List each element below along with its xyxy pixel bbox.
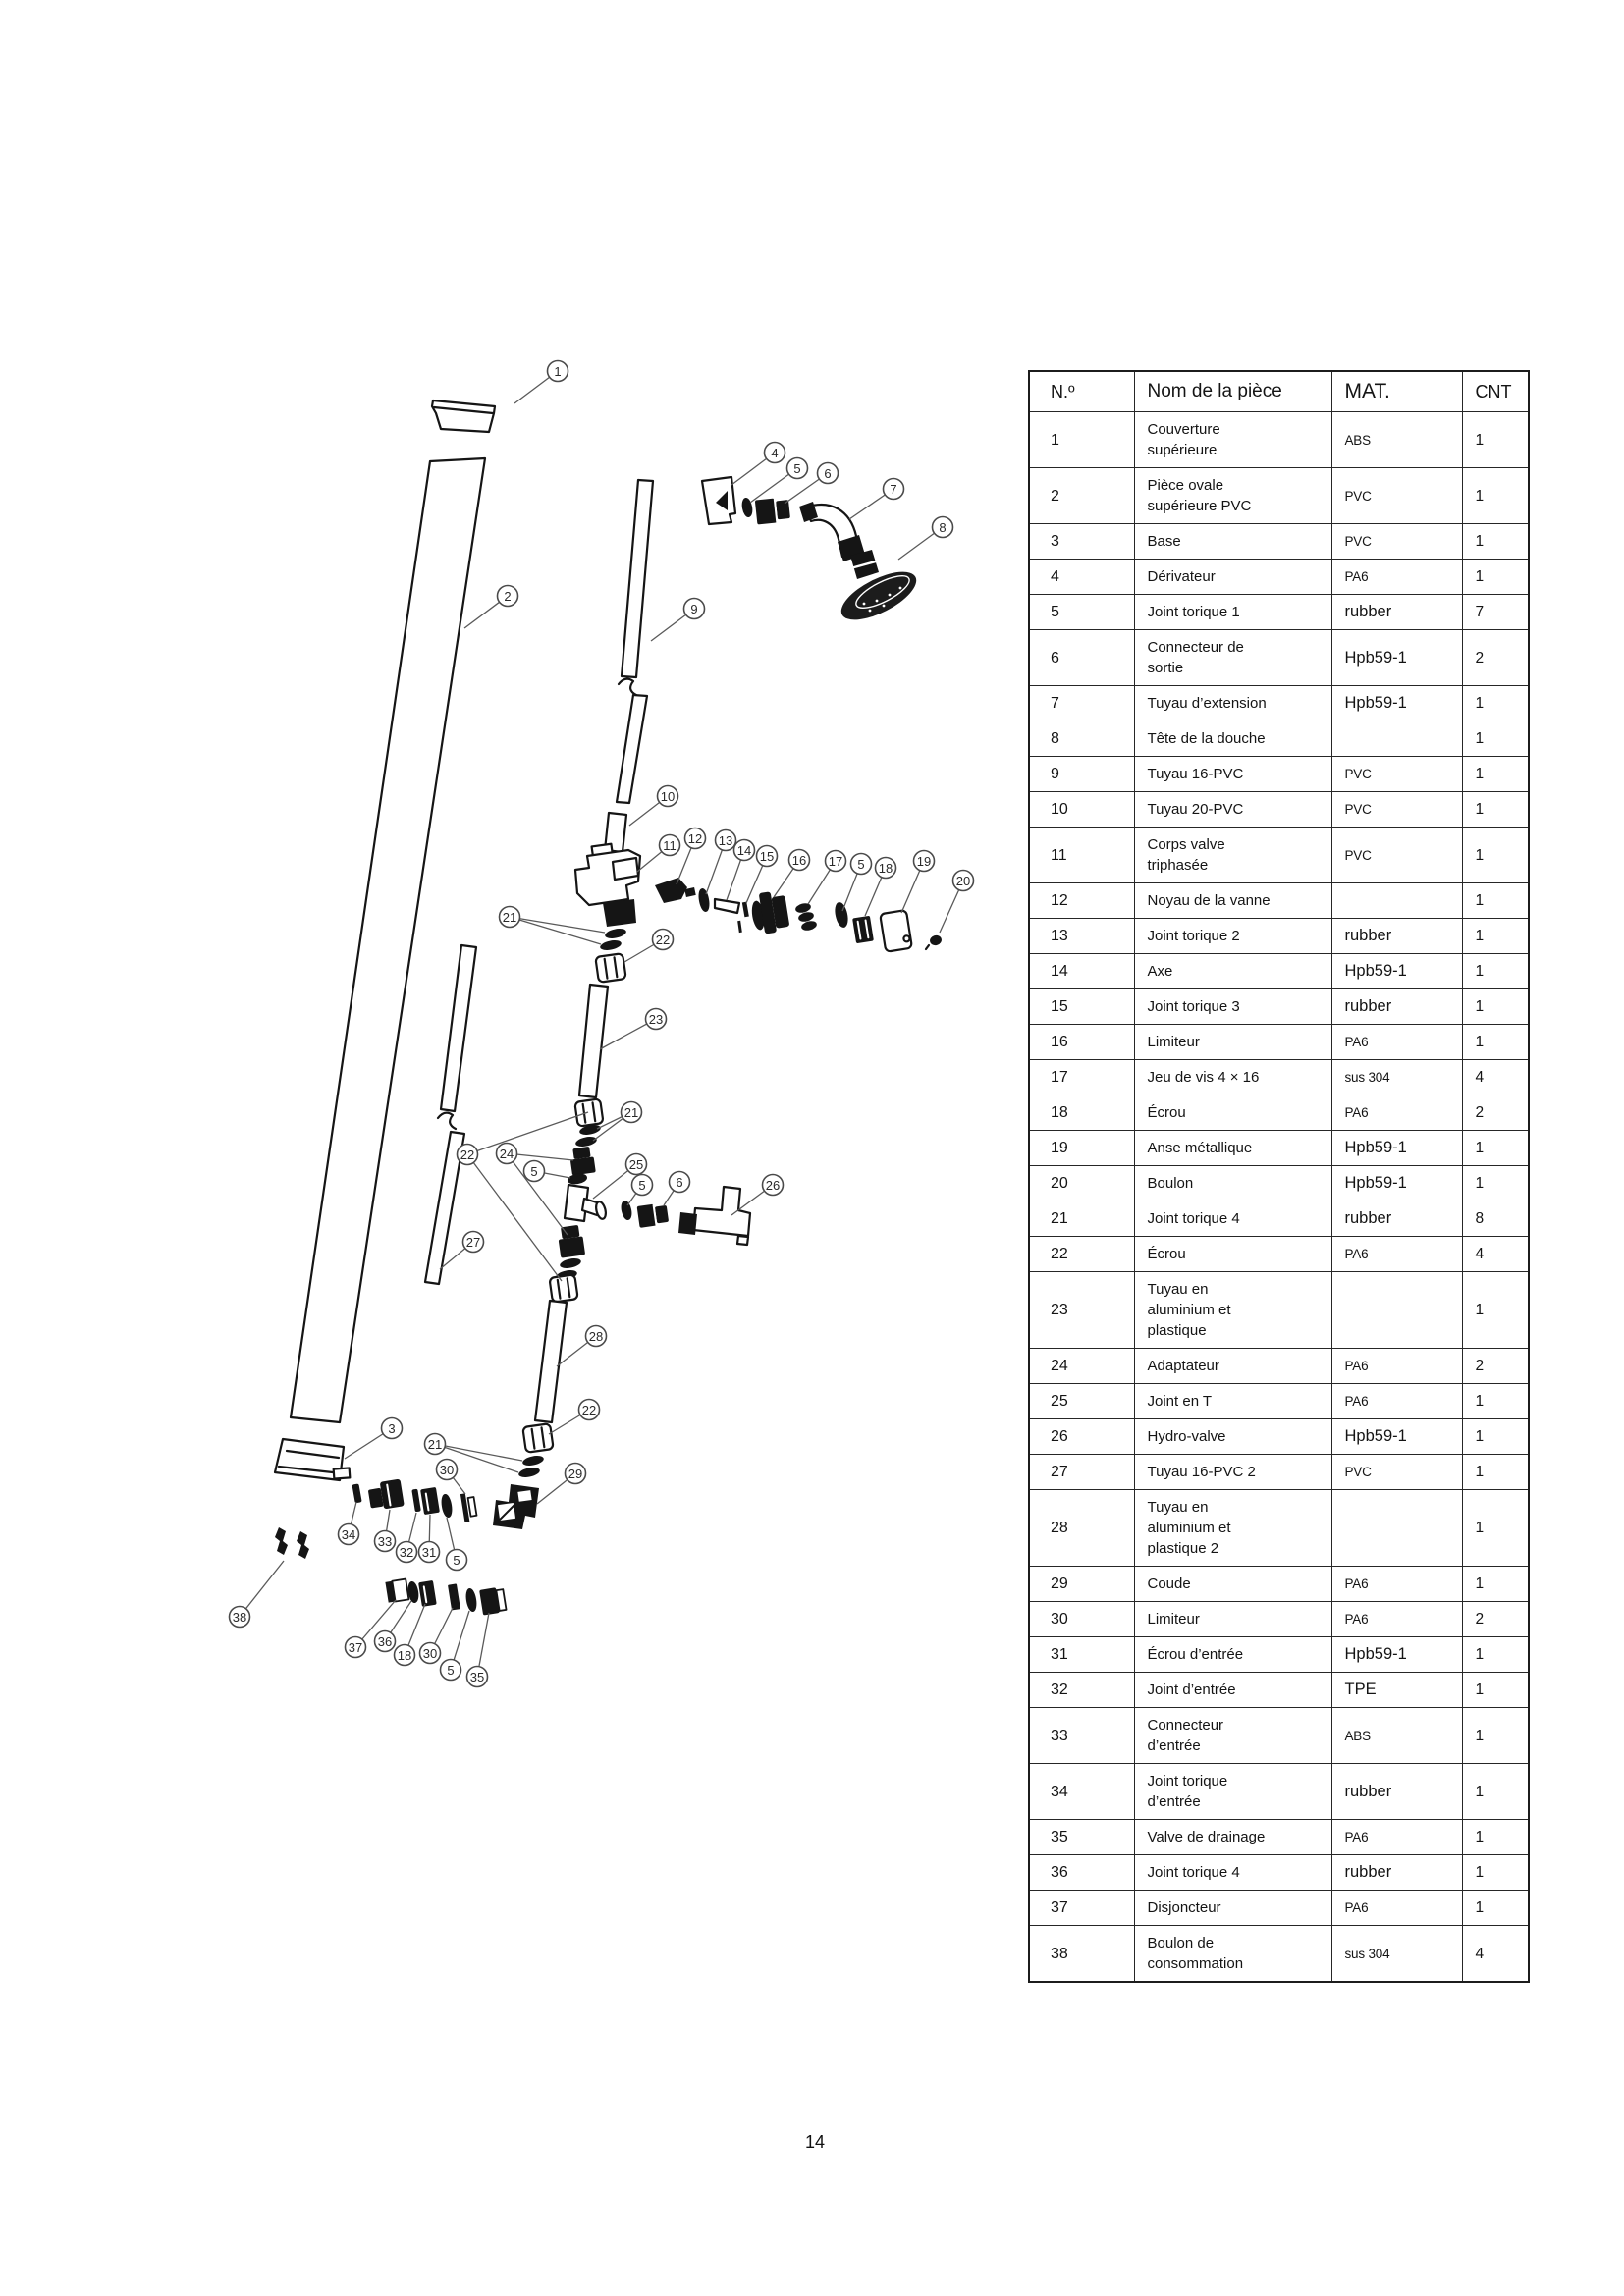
callout-6: 6: [670, 1172, 690, 1193]
callout-5: 5: [787, 458, 808, 479]
callout-28: 28: [586, 1326, 607, 1347]
table-cell: 31: [1029, 1637, 1134, 1673]
table-cell: 1: [1462, 1419, 1529, 1455]
table-cell: 2: [1462, 1602, 1529, 1637]
table-cell: 1: [1462, 468, 1529, 524]
table-cell: Hpb59-1: [1331, 954, 1462, 989]
callout-5: 5: [447, 1550, 467, 1571]
table-cell: Joint torique 1: [1134, 595, 1331, 630]
part-limiter: [749, 889, 790, 935]
part-oring: [621, 1201, 632, 1219]
part-tube-alu: [579, 985, 608, 1097]
table-cell: 14: [1029, 954, 1134, 989]
table-cell: Connecteur de sortie: [1134, 630, 1331, 686]
svg-text:6: 6: [824, 466, 831, 481]
svg-text:18: 18: [398, 1648, 411, 1663]
part-shower-head: [835, 550, 923, 629]
table-row: 9Tuyau 16-PVCPVC1: [1029, 757, 1529, 792]
svg-text:8: 8: [939, 520, 946, 535]
part-limiter: [460, 1492, 477, 1522]
table-cell: 15: [1029, 989, 1134, 1025]
part-valve-body: [575, 844, 640, 927]
table-cell: [1331, 1490, 1462, 1567]
table-cell: 27: [1029, 1455, 1134, 1490]
svg-text:21: 21: [624, 1105, 638, 1120]
table-cell: Tuyau en aluminium et plastique: [1134, 1272, 1331, 1349]
table-cell: ABS: [1331, 412, 1462, 468]
table-cell: Écrou: [1134, 1095, 1331, 1131]
callout-18: 18: [395, 1645, 415, 1666]
svg-text:6: 6: [676, 1175, 682, 1190]
table-cell: 2: [1029, 468, 1134, 524]
table-cell: PA6: [1331, 1891, 1462, 1926]
column-header-count: CNT: [1462, 371, 1529, 412]
callout-7: 7: [884, 479, 904, 500]
table-cell: PVC: [1331, 792, 1462, 828]
part-oring: [742, 902, 749, 918]
column-header-number: N.º: [1029, 371, 1134, 412]
part-consumption-bolts: [275, 1527, 309, 1559]
part-screw-set: [794, 902, 818, 933]
table-row: 37DisjoncteurPA61: [1029, 1891, 1529, 1926]
callout-16: 16: [789, 850, 810, 871]
table-cell: sus 304: [1331, 1926, 1462, 1983]
table-cell: 8: [1462, 1201, 1529, 1237]
table-cell: Joint d’entrée: [1134, 1673, 1331, 1708]
table-cell: Anse métallique: [1134, 1131, 1331, 1166]
table-cell: 30: [1029, 1602, 1134, 1637]
table-cell: Connecteur d’entrée: [1134, 1708, 1331, 1764]
table-cell: 1: [1462, 560, 1529, 595]
table-cell: 37: [1029, 1891, 1134, 1926]
table-row: 3BasePVC1: [1029, 524, 1529, 560]
table-cell: PA6: [1331, 1095, 1462, 1131]
table-row: 27Tuyau 16-PVC 2PVC1: [1029, 1455, 1529, 1490]
table-cell: 6: [1029, 630, 1134, 686]
table-cell: 1: [1029, 412, 1134, 468]
part-oring: [741, 498, 752, 516]
part-inlet-nut: [420, 1487, 440, 1515]
table-cell: Hpb59-1: [1331, 1419, 1462, 1455]
table-cell: 8: [1029, 721, 1134, 757]
table-cell: 25: [1029, 1384, 1134, 1419]
table-cell: 28: [1029, 1490, 1134, 1567]
table-row: 18ÉcrouPA62: [1029, 1095, 1529, 1131]
callout-5: 5: [851, 854, 872, 875]
table-cell: sus 304: [1331, 1060, 1462, 1095]
callout-1: 1: [548, 361, 568, 382]
part-valve-core: [655, 878, 696, 903]
table-row: 12Noyau de la vanne1: [1029, 883, 1529, 919]
svg-text:16: 16: [792, 853, 806, 868]
svg-text:10: 10: [661, 789, 675, 804]
part-elbow: [493, 1484, 539, 1529]
table-cell: PVC: [1331, 1455, 1462, 1490]
table-cell: 2: [1462, 630, 1529, 686]
table-cell: 34: [1029, 1764, 1134, 1820]
svg-text:24: 24: [500, 1147, 514, 1161]
table-cell: Écrou: [1134, 1237, 1331, 1272]
callout-29: 29: [566, 1464, 586, 1484]
table-cell: Joint torique 3: [1134, 989, 1331, 1025]
part-inlet-connector: [367, 1479, 405, 1512]
table-cell: Joint torique 4: [1134, 1855, 1331, 1891]
part-oring-pair: [574, 1123, 601, 1148]
part-inlet-oring: [352, 1483, 361, 1503]
table-cell: 5: [1029, 595, 1134, 630]
table-row: 38Boulon de consommationsus 3044: [1029, 1926, 1529, 1983]
callout-15: 15: [757, 846, 778, 867]
table-cell: Hpb59-1: [1331, 1637, 1462, 1673]
table-cell: TPE: [1331, 1673, 1462, 1708]
table-row: 7Tuyau d’extensionHpb59-11: [1029, 686, 1529, 721]
column-header-material: MAT.: [1331, 371, 1462, 412]
callout-38: 38: [230, 1607, 250, 1628]
table-cell: PVC: [1331, 524, 1462, 560]
part-base: [275, 1439, 350, 1480]
table-row: 20BoulonHpb59-11: [1029, 1166, 1529, 1201]
table-cell: Coude: [1134, 1567, 1331, 1602]
part-outlet-connector: [637, 1202, 670, 1228]
table-row: 17Jeu de vis 4 × 16sus 3044: [1029, 1060, 1529, 1095]
callout-21: 21: [500, 907, 520, 928]
leader-line: [467, 1112, 588, 1154]
callout-2: 2: [498, 586, 518, 607]
table-row: 23Tuyau en aluminium et plastique1: [1029, 1272, 1529, 1349]
table-cell: 1: [1462, 792, 1529, 828]
table-cell: PA6: [1331, 1820, 1462, 1855]
table-cell: PA6: [1331, 1602, 1462, 1637]
table-cell: 16: [1029, 1025, 1134, 1060]
table-cell: Joint torique d’entrée: [1134, 1764, 1331, 1820]
table-cell: Disjoncteur: [1134, 1891, 1331, 1926]
table-cell: 4: [1462, 1060, 1529, 1095]
table-cell: rubber: [1331, 1855, 1462, 1891]
svg-text:7: 7: [890, 482, 896, 497]
table-cell: 1: [1462, 1820, 1529, 1855]
svg-text:5: 5: [447, 1663, 454, 1678]
table-cell: 19: [1029, 1131, 1134, 1166]
callout-35: 35: [467, 1667, 488, 1687]
callout-37: 37: [346, 1637, 366, 1658]
svg-text:29: 29: [568, 1467, 582, 1481]
svg-text:5: 5: [453, 1553, 460, 1568]
table-cell: Dérivateur: [1134, 560, 1331, 595]
table-cell: Tuyau 16-PVC: [1134, 757, 1331, 792]
table-cell: Axe: [1134, 954, 1331, 989]
table-cell: 13: [1029, 919, 1134, 954]
svg-text:19: 19: [917, 854, 931, 869]
callout-21: 21: [425, 1434, 446, 1455]
part-oring-pair: [517, 1454, 544, 1478]
svg-text:36: 36: [378, 1634, 392, 1649]
table-cell: PA6: [1331, 1025, 1462, 1060]
part-nut: [522, 1423, 553, 1453]
svg-text:17: 17: [829, 854, 842, 869]
svg-text:15: 15: [760, 849, 774, 864]
table-cell: 3: [1029, 524, 1134, 560]
parts-table: N.º Nom de la pièce MAT. CNT 1Couverture…: [1028, 370, 1530, 1983]
part-hydro-valve: [678, 1187, 750, 1245]
callout-13: 13: [716, 830, 736, 851]
callout-34: 34: [339, 1524, 359, 1545]
svg-text:14: 14: [737, 843, 751, 858]
table-cell: 32: [1029, 1673, 1134, 1708]
svg-text:31: 31: [422, 1545, 436, 1560]
svg-text:30: 30: [440, 1463, 454, 1477]
svg-text:28: 28: [589, 1329, 603, 1344]
document-page: 1294567810111213141516175181920212223212…: [0, 0, 1624, 2296]
table-cell: PVC: [1331, 468, 1462, 524]
table-cell: 1: [1462, 1673, 1529, 1708]
part-nut: [549, 1274, 577, 1302]
table-cell: 33: [1029, 1708, 1134, 1764]
leader-line: [510, 917, 605, 933]
svg-text:1: 1: [554, 364, 561, 379]
table-cell: 1: [1462, 1891, 1529, 1926]
svg-text:38: 38: [233, 1610, 246, 1625]
parts-table-body: 1Couverture supérieureABS12Pièce ovale s…: [1029, 412, 1529, 1983]
part-extension-arm: [799, 502, 865, 561]
table-row: 15Joint torique 3rubber1: [1029, 989, 1529, 1025]
callout-32: 32: [397, 1542, 417, 1563]
table-cell: 24: [1029, 1349, 1134, 1384]
table-row: 35Valve de drainagePA61: [1029, 1820, 1529, 1855]
table-cell: Base: [1134, 524, 1331, 560]
leader-line: [510, 917, 601, 944]
part-diverter: [702, 477, 735, 524]
table-cell: rubber: [1331, 595, 1462, 630]
table-cell: Corps valve triphasée: [1134, 828, 1331, 883]
part-nut: [418, 1580, 437, 1607]
table-row: 31Écrou d’entréeHpb59-11: [1029, 1637, 1529, 1673]
part-adapter: [557, 1224, 585, 1257]
table-row: 14AxeHpb59-11: [1029, 954, 1529, 989]
table-cell: Écrou d’entrée: [1134, 1637, 1331, 1673]
table-row: 36Joint torique 4rubber1: [1029, 1855, 1529, 1891]
table-row: 5Joint torique 1rubber7: [1029, 595, 1529, 630]
callout-30: 30: [437, 1460, 458, 1480]
part-axis: [715, 899, 742, 933]
table-row: 6Connecteur de sortieHpb59-12: [1029, 630, 1529, 686]
part-metal-handle: [880, 910, 912, 952]
table-cell: rubber: [1331, 1201, 1462, 1237]
table-cell: 1: [1462, 686, 1529, 721]
svg-text:5: 5: [793, 461, 800, 476]
svg-text:25: 25: [629, 1157, 643, 1172]
table-cell: Joint en T: [1134, 1384, 1331, 1419]
table-cell: 4: [1462, 1237, 1529, 1272]
part-nut: [852, 916, 874, 943]
table-cell: PA6: [1331, 1384, 1462, 1419]
part-drain-valve: [479, 1586, 507, 1615]
table-cell: 26: [1029, 1419, 1134, 1455]
table-cell: 1: [1462, 1637, 1529, 1673]
part-oring: [441, 1495, 452, 1518]
table-row: 30LimiteurPA62: [1029, 1602, 1529, 1637]
table-cell: PVC: [1331, 757, 1462, 792]
svg-text:21: 21: [428, 1437, 442, 1452]
table-cell: 1: [1462, 919, 1529, 954]
table-cell: rubber: [1331, 1764, 1462, 1820]
svg-text:23: 23: [649, 1012, 663, 1027]
svg-text:33: 33: [378, 1534, 392, 1549]
callout-14: 14: [734, 840, 755, 861]
callout-17: 17: [826, 851, 846, 872]
svg-text:34: 34: [342, 1527, 355, 1542]
table-cell: 9: [1029, 757, 1134, 792]
table-cell: 29: [1029, 1567, 1134, 1602]
table-cell: 21: [1029, 1201, 1134, 1237]
table-cell: 1: [1462, 1025, 1529, 1060]
callout-25: 25: [626, 1154, 647, 1175]
table-cell: 1: [1462, 954, 1529, 989]
table-cell: 22: [1029, 1237, 1134, 1272]
svg-text:22: 22: [656, 933, 670, 947]
svg-text:11: 11: [663, 838, 677, 853]
table-cell: 1: [1462, 883, 1529, 919]
callout-26: 26: [763, 1175, 784, 1196]
table-cell: 20: [1029, 1166, 1134, 1201]
part-column-panel: [291, 458, 485, 1422]
svg-text:22: 22: [582, 1403, 596, 1417]
table-cell: Limiteur: [1134, 1025, 1331, 1060]
table-row: 33Connecteur d’entréeABS1: [1029, 1708, 1529, 1764]
table-cell: 1: [1462, 1708, 1529, 1764]
table-row: 21Joint torique 4rubber8: [1029, 1201, 1529, 1237]
table-cell: 1: [1462, 1855, 1529, 1891]
part-oring: [835, 902, 849, 928]
table-header-row: N.º Nom de la pièce MAT. CNT: [1029, 371, 1529, 412]
callout-8: 8: [933, 517, 953, 538]
table-cell: rubber: [1331, 919, 1462, 954]
table-cell: 2: [1462, 1095, 1529, 1131]
table-cell: [1331, 883, 1462, 919]
svg-text:35: 35: [470, 1670, 484, 1684]
table-cell: 1: [1462, 1166, 1529, 1201]
table-cell: Joint torique 2: [1134, 919, 1331, 954]
table-row: 26Hydro-valveHpb59-11: [1029, 1419, 1529, 1455]
table-cell: 1: [1462, 721, 1529, 757]
part-oring: [568, 1173, 586, 1184]
callout-22: 22: [458, 1145, 478, 1165]
table-row: 11Corps valve triphaséePVC1: [1029, 828, 1529, 883]
table-cell: Jeu de vis 4 × 16: [1134, 1060, 1331, 1095]
callout-18: 18: [876, 858, 896, 879]
svg-text:2: 2: [504, 589, 511, 604]
table-cell: rubber: [1331, 989, 1462, 1025]
table-cell: 10: [1029, 792, 1134, 828]
part-oring: [698, 888, 710, 911]
svg-text:9: 9: [690, 602, 697, 616]
part-top-cover: [432, 400, 495, 432]
svg-text:27: 27: [466, 1235, 480, 1250]
table-cell: Boulon de consommation: [1134, 1926, 1331, 1983]
svg-text:18: 18: [879, 861, 893, 876]
callout-10: 10: [658, 786, 678, 807]
table-cell: Hpb59-1: [1331, 686, 1462, 721]
table-cell: PA6: [1331, 560, 1462, 595]
callout-5: 5: [632, 1175, 653, 1196]
callout-5: 5: [441, 1660, 461, 1681]
table-cell: Hpb59-1: [1331, 1166, 1462, 1201]
table-cell: Joint torique 4: [1134, 1201, 1331, 1237]
page-number: 14: [766, 2132, 864, 2153]
part-breaker: [385, 1579, 408, 1603]
part-nut: [595, 953, 625, 983]
column-header-name: Nom de la pièce: [1134, 371, 1331, 412]
table-cell: Limiteur: [1134, 1602, 1331, 1637]
table-cell: 18: [1029, 1095, 1134, 1131]
callout-31: 31: [419, 1542, 440, 1563]
table-cell: Tuyau 20-PVC: [1134, 792, 1331, 828]
table-cell: 23: [1029, 1272, 1134, 1349]
svg-text:32: 32: [400, 1545, 413, 1560]
callout-22: 22: [653, 930, 674, 950]
table-cell: [1331, 721, 1462, 757]
table-cell: Tuyau 16-PVC 2: [1134, 1455, 1331, 1490]
table-cell: 1: [1462, 1490, 1529, 1567]
table-cell: 17: [1029, 1060, 1134, 1095]
leader-line: [435, 1444, 522, 1461]
callout-6: 6: [818, 463, 839, 484]
table-cell: PA6: [1331, 1237, 1462, 1272]
table-row: 19Anse métalliqueHpb59-11: [1029, 1131, 1529, 1166]
table-cell: Boulon: [1134, 1166, 1331, 1201]
table-cell: 1: [1462, 1272, 1529, 1349]
callout-22: 22: [579, 1400, 600, 1420]
callout-9: 9: [684, 599, 705, 619]
table-cell: 1: [1462, 1567, 1529, 1602]
table-cell: 38: [1029, 1926, 1134, 1983]
svg-text:26: 26: [766, 1178, 780, 1193]
callout-30: 30: [420, 1643, 441, 1664]
table-cell: Noyau de la vanne: [1134, 883, 1331, 919]
callout-12: 12: [685, 828, 706, 849]
table-cell: PA6: [1331, 1349, 1462, 1384]
svg-text:12: 12: [688, 831, 702, 846]
callout-11: 11: [660, 835, 680, 856]
part-inlet-gasket: [411, 1489, 421, 1513]
table-row: 34Joint torique d’entréerubber1: [1029, 1764, 1529, 1820]
table-cell: Hydro-valve: [1134, 1419, 1331, 1455]
table-row: 32Joint d’entréeTPE1: [1029, 1673, 1529, 1708]
table-cell: 7: [1462, 595, 1529, 630]
table-row: 24AdaptateurPA62: [1029, 1349, 1529, 1384]
table-cell: 2: [1462, 1349, 1529, 1384]
table-cell: 12: [1029, 883, 1134, 919]
table-cell: 1: [1462, 524, 1529, 560]
table-cell: 1: [1462, 828, 1529, 883]
table-cell: 11: [1029, 828, 1134, 883]
table-cell: PA6: [1331, 1567, 1462, 1602]
callout-27: 27: [463, 1232, 484, 1253]
callout-5: 5: [524, 1161, 545, 1182]
table-cell: 36: [1029, 1855, 1134, 1891]
svg-text:30: 30: [423, 1646, 437, 1661]
part-limiter: [448, 1583, 460, 1610]
part-tee-joint: [565, 1185, 608, 1221]
part-outlet-connector: [755, 497, 790, 524]
table-row: 2Pièce ovale supérieure PVCPVC1: [1029, 468, 1529, 524]
callout-33: 33: [375, 1531, 396, 1552]
table-cell: 1: [1462, 412, 1529, 468]
table-cell: 1: [1462, 1131, 1529, 1166]
table-cell: Hpb59-1: [1331, 630, 1462, 686]
callout-24: 24: [497, 1144, 517, 1164]
table-cell: Tuyau en aluminium et plastique 2: [1134, 1490, 1331, 1567]
svg-text:5: 5: [638, 1178, 645, 1193]
